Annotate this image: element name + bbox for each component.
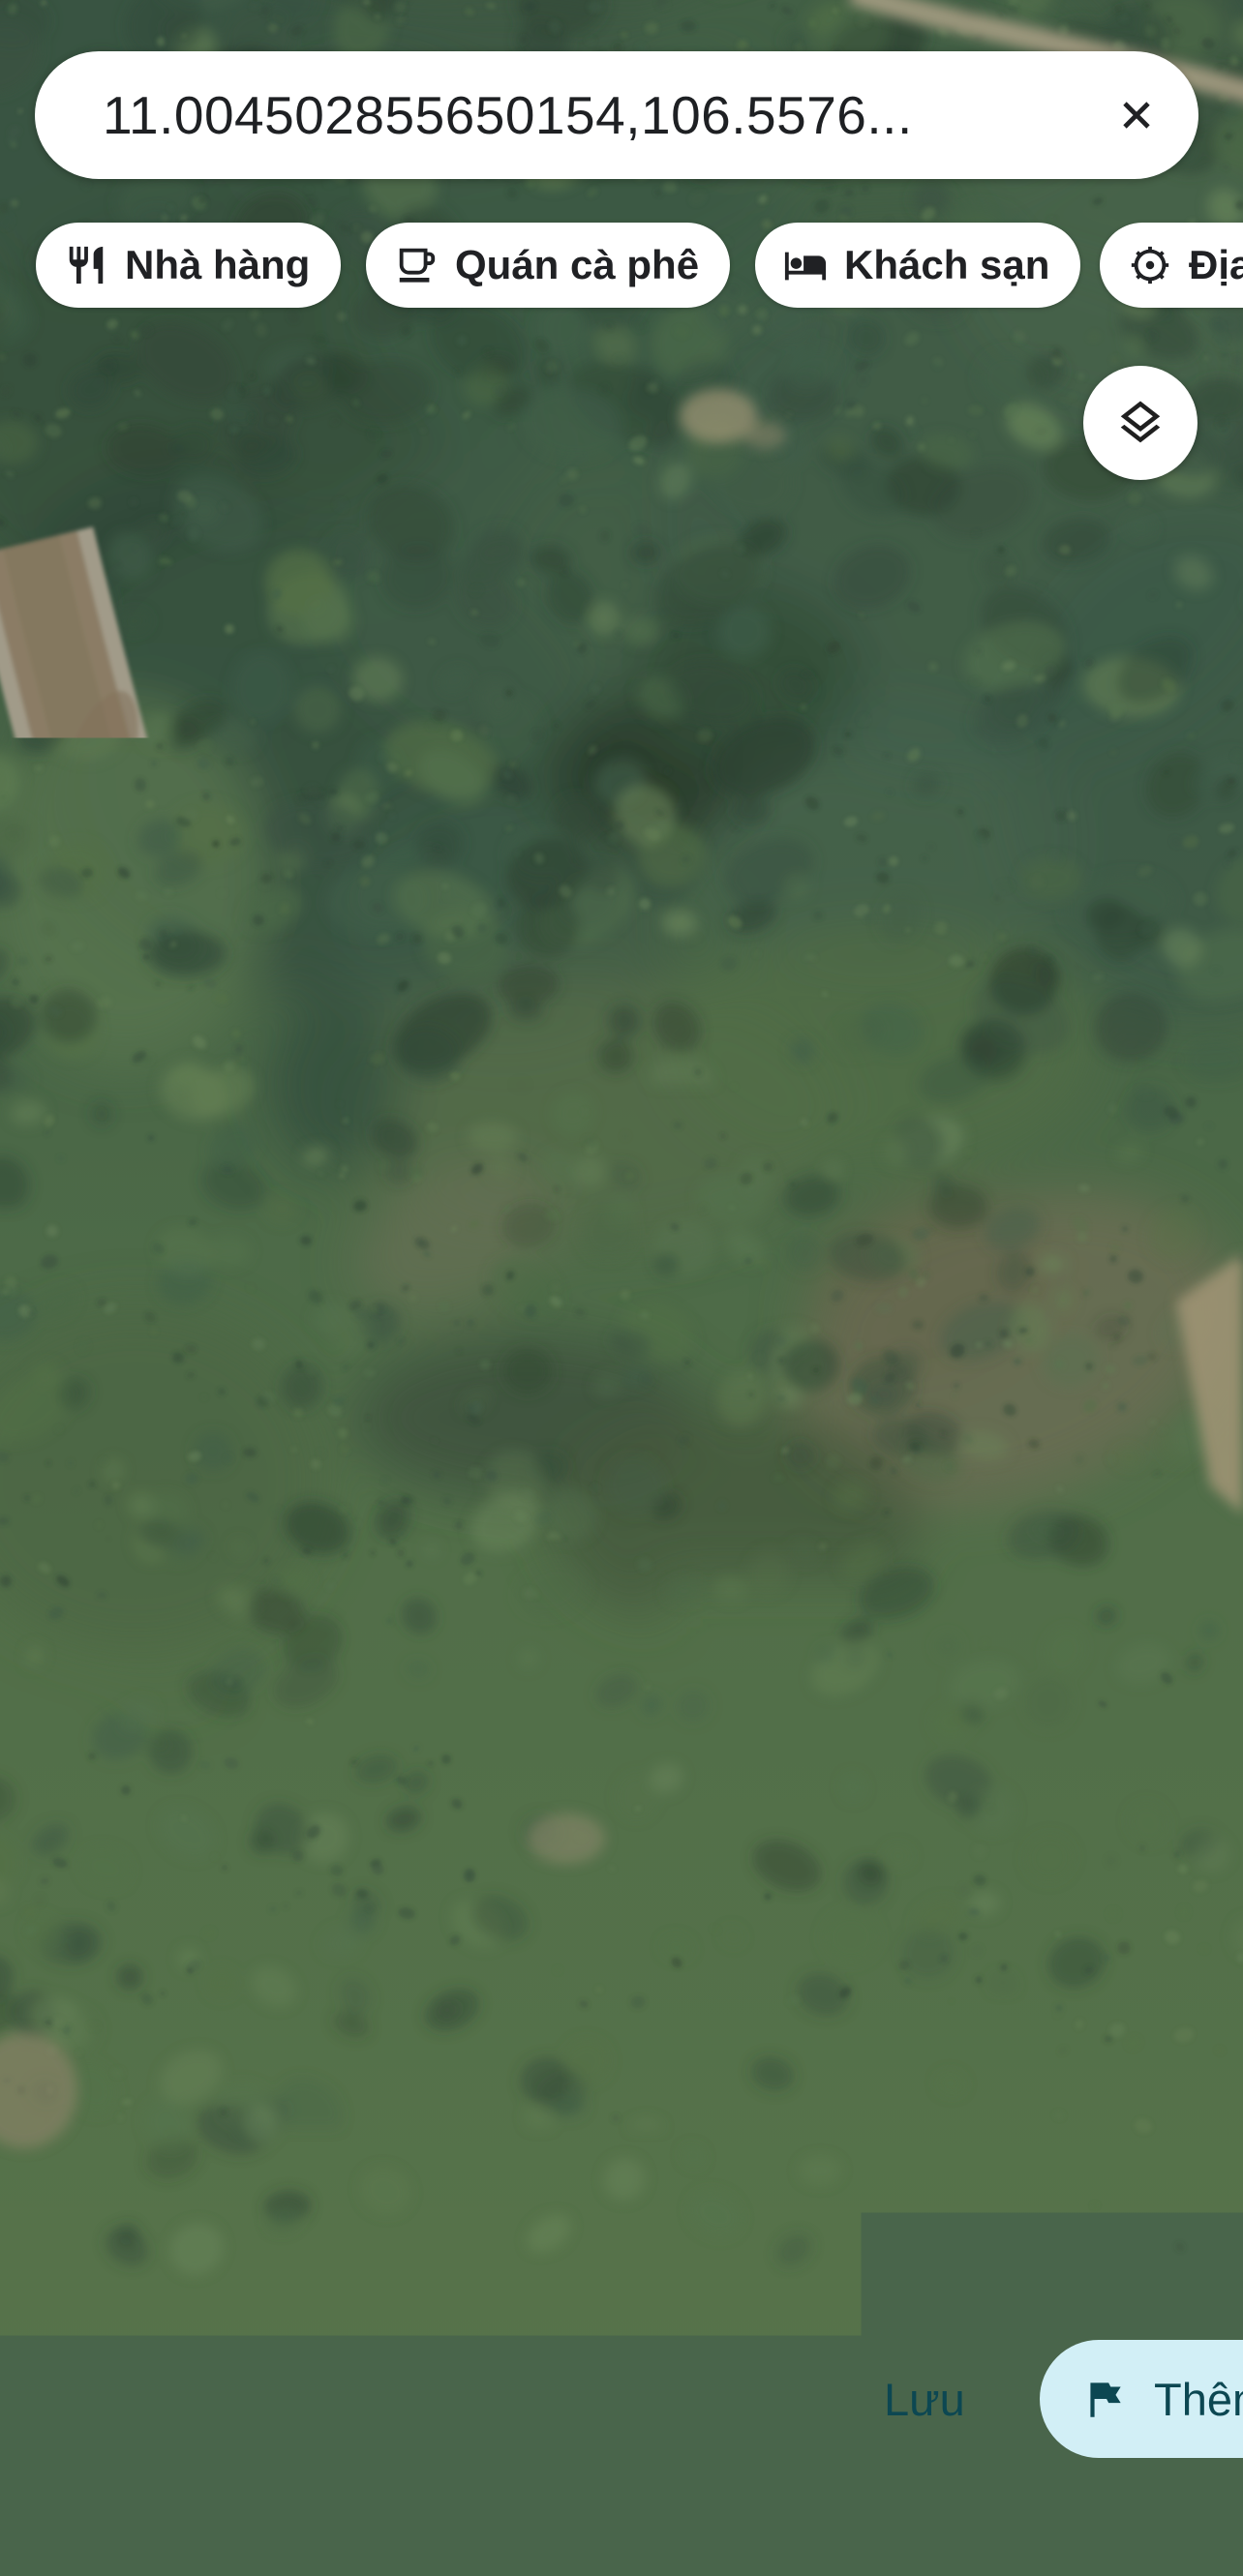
svg-text:100 bộ: 100 bộ xyxy=(897,1991,1007,2030)
svg-text:Google: Google xyxy=(53,2032,212,2084)
svg-text:Batdongsan: Batdongsan xyxy=(612,1209,779,1241)
svg-text:com.vn: com.vn xyxy=(734,1194,777,1210)
svg-text:at: at xyxy=(0,1022,30,1069)
svg-text:Maps: Maps xyxy=(225,2033,337,2083)
svg-text:106°33'27.5"E: 106°33'27.5"E xyxy=(819,938,1090,984)
svg-text:PaPa Farm Riverside 2: PaPa Farm Riverside 2 xyxy=(648,2085,1055,2127)
svg-text:50 m: 50 m xyxy=(927,2040,1007,2080)
svg-text:11°00'16.2"N: 11°00'16.2"N xyxy=(819,842,1067,888)
svg-text:] -: ] - xyxy=(0,970,27,1015)
svg-text:by PropertyGuru: by PropertyGuru xyxy=(620,1243,741,1262)
